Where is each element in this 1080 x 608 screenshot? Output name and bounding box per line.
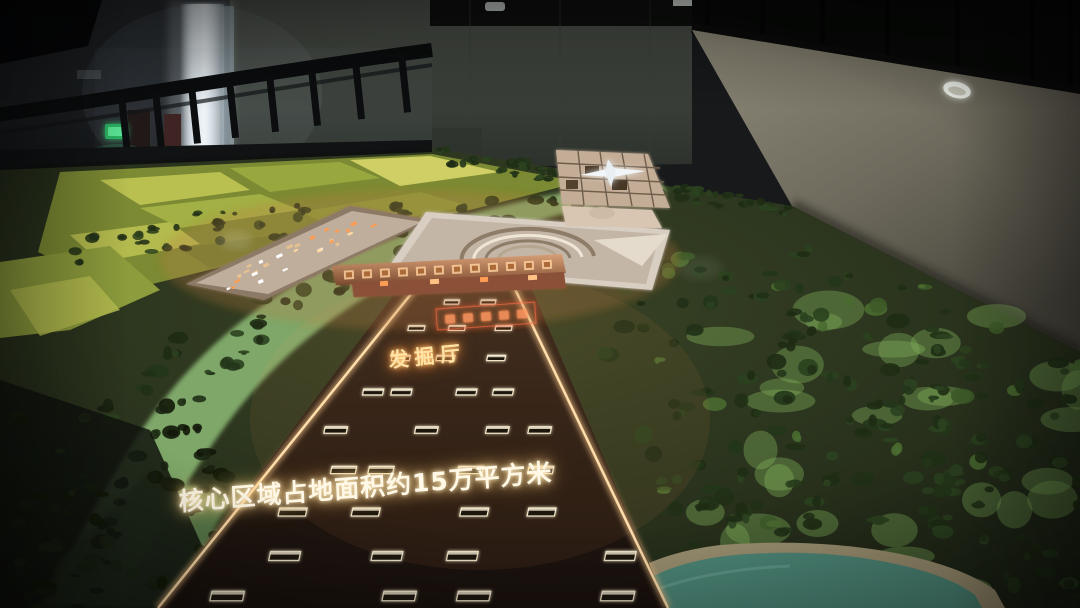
ceiling-light	[485, 2, 505, 11]
scene-svg	[0, 0, 1080, 608]
photo-canvas: 发掘厅 核心区域占地面积约15万平方米	[0, 0, 1080, 608]
